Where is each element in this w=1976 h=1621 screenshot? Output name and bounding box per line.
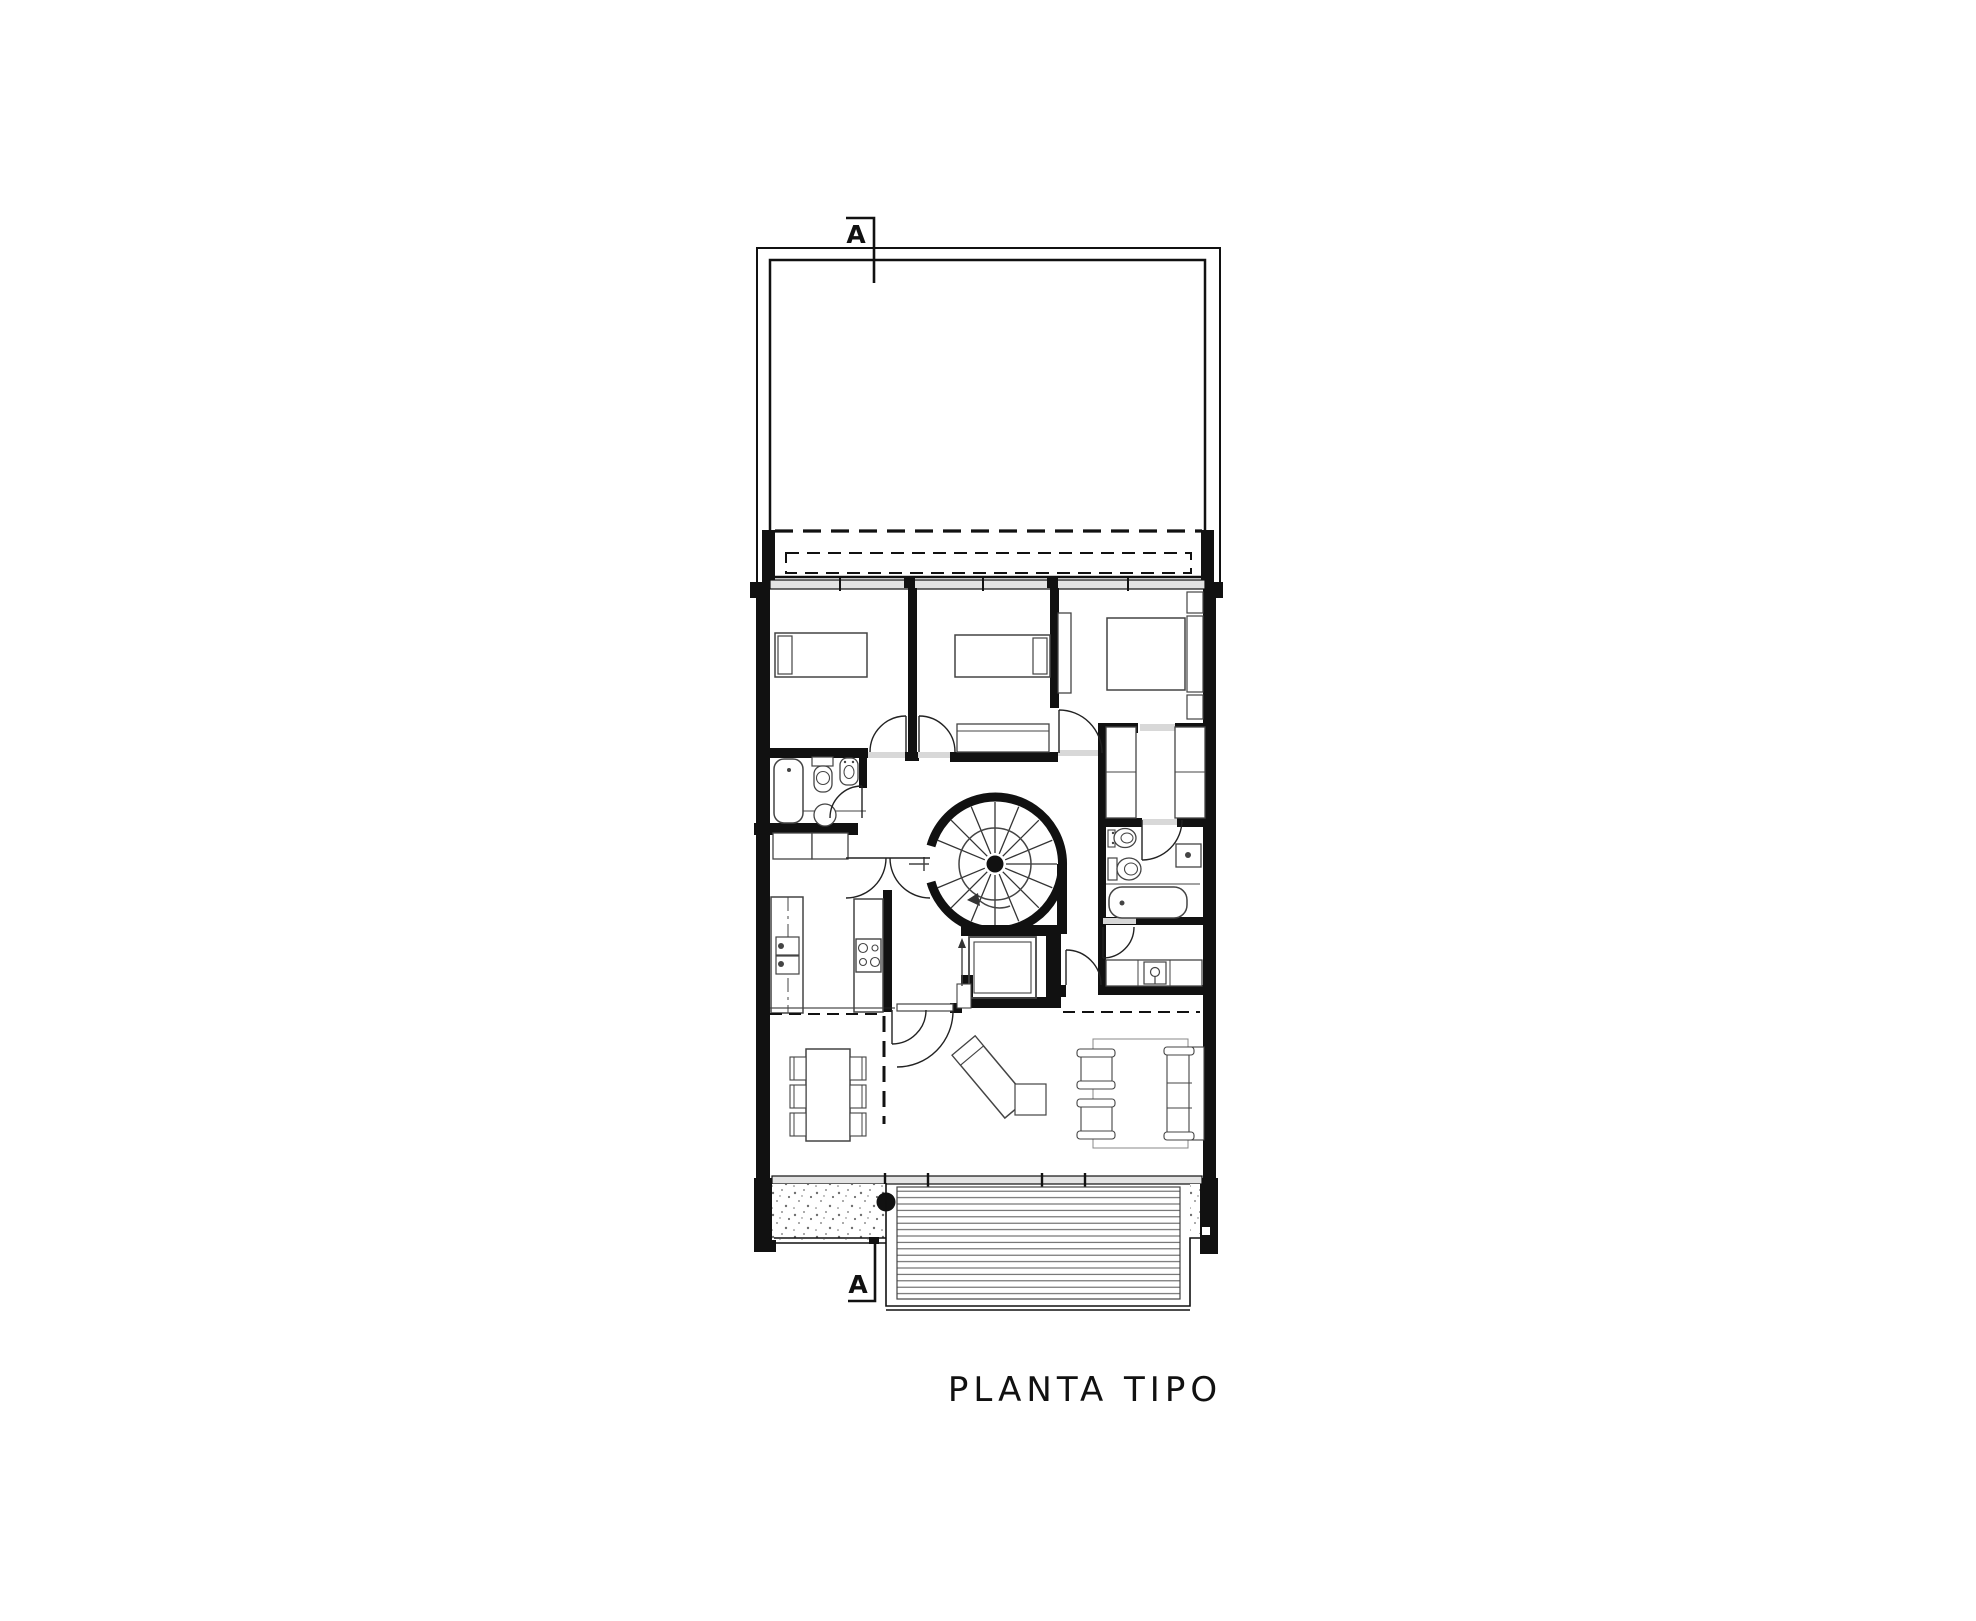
double-bed [1107, 618, 1185, 690]
wardrobe [1058, 613, 1071, 693]
living-area [952, 1036, 1204, 1148]
stair-center-post [987, 856, 1004, 873]
gravel-area-right [1190, 1184, 1200, 1234]
terrace-pier-right [1201, 530, 1214, 584]
toilet-tank [1108, 858, 1117, 880]
washbasin [814, 804, 836, 826]
closet [773, 833, 812, 859]
pier-bottom-right [1200, 1178, 1218, 1254]
bathroom-right [1106, 829, 1201, 919]
bidet [840, 758, 858, 785]
laundry [1106, 960, 1202, 986]
upper-terrace [757, 248, 1220, 588]
floor-plan-drawing: A [0, 0, 1976, 1621]
cooktop [856, 939, 881, 972]
gravel-area-left [772, 1184, 886, 1240]
wood-deck [897, 1187, 1180, 1299]
window-band-top [770, 577, 1205, 591]
east-wall [1203, 582, 1216, 1178]
armchair [1077, 1049, 1115, 1089]
lower-terrace [772, 1183, 1200, 1310]
section-letter-bottom: A [848, 1270, 868, 1299]
bedroom-middle [955, 635, 1050, 752]
nightstand [1187, 695, 1203, 719]
door-entry-living [897, 1004, 953, 1067]
bedroom-right [1058, 592, 1203, 719]
door-hall-corridor [1066, 950, 1101, 985]
section-marker-top: A [846, 218, 874, 283]
section-marker-bottom: A [848, 1243, 875, 1301]
elevator-cab [969, 937, 1036, 998]
plan-title: PLANTA TIPO [948, 1370, 1222, 1410]
closet [812, 833, 848, 859]
west-wall [756, 582, 770, 1178]
dining-area [790, 1049, 866, 1141]
door-bedroom-middle [919, 716, 955, 752]
wall-kitchen [883, 890, 892, 1012]
spiral-stair [909, 797, 1063, 931]
wardrobe [957, 724, 1049, 752]
pillow [778, 636, 792, 674]
tub-drain [1120, 901, 1125, 906]
side-table [1015, 1084, 1046, 1115]
dining-table [806, 1049, 850, 1141]
overhang-dashed-rect [786, 553, 1191, 573]
elevator-entry-arrow [958, 938, 966, 948]
stair-direction-arrow [967, 893, 980, 906]
dressing-closets [1106, 727, 1205, 818]
headboard [1187, 616, 1203, 692]
terrace-pier-left [762, 530, 775, 584]
armchair [1077, 1099, 1115, 1139]
pillow [1033, 638, 1047, 674]
bedroom-left [775, 633, 867, 677]
toilet-tank [812, 757, 833, 766]
door-kitchen [892, 1010, 926, 1044]
door-bedroom-right [1059, 710, 1102, 753]
wall-bed1-bed2 [908, 588, 917, 760]
kitchen [771, 897, 883, 1013]
bathroom-left [774, 757, 866, 826]
tub-drain [787, 768, 791, 772]
wall-bath-column [1098, 723, 1106, 995]
door-laundry [1103, 927, 1134, 958]
hallway-closets [773, 833, 848, 859]
section-letter-top: A [846, 220, 866, 249]
elevator [957, 925, 1066, 1008]
floor-plan-page: A [0, 0, 1976, 1621]
door-bedroom-left [870, 716, 906, 752]
nightstand [1187, 592, 1203, 613]
sofa [1164, 1047, 1204, 1140]
